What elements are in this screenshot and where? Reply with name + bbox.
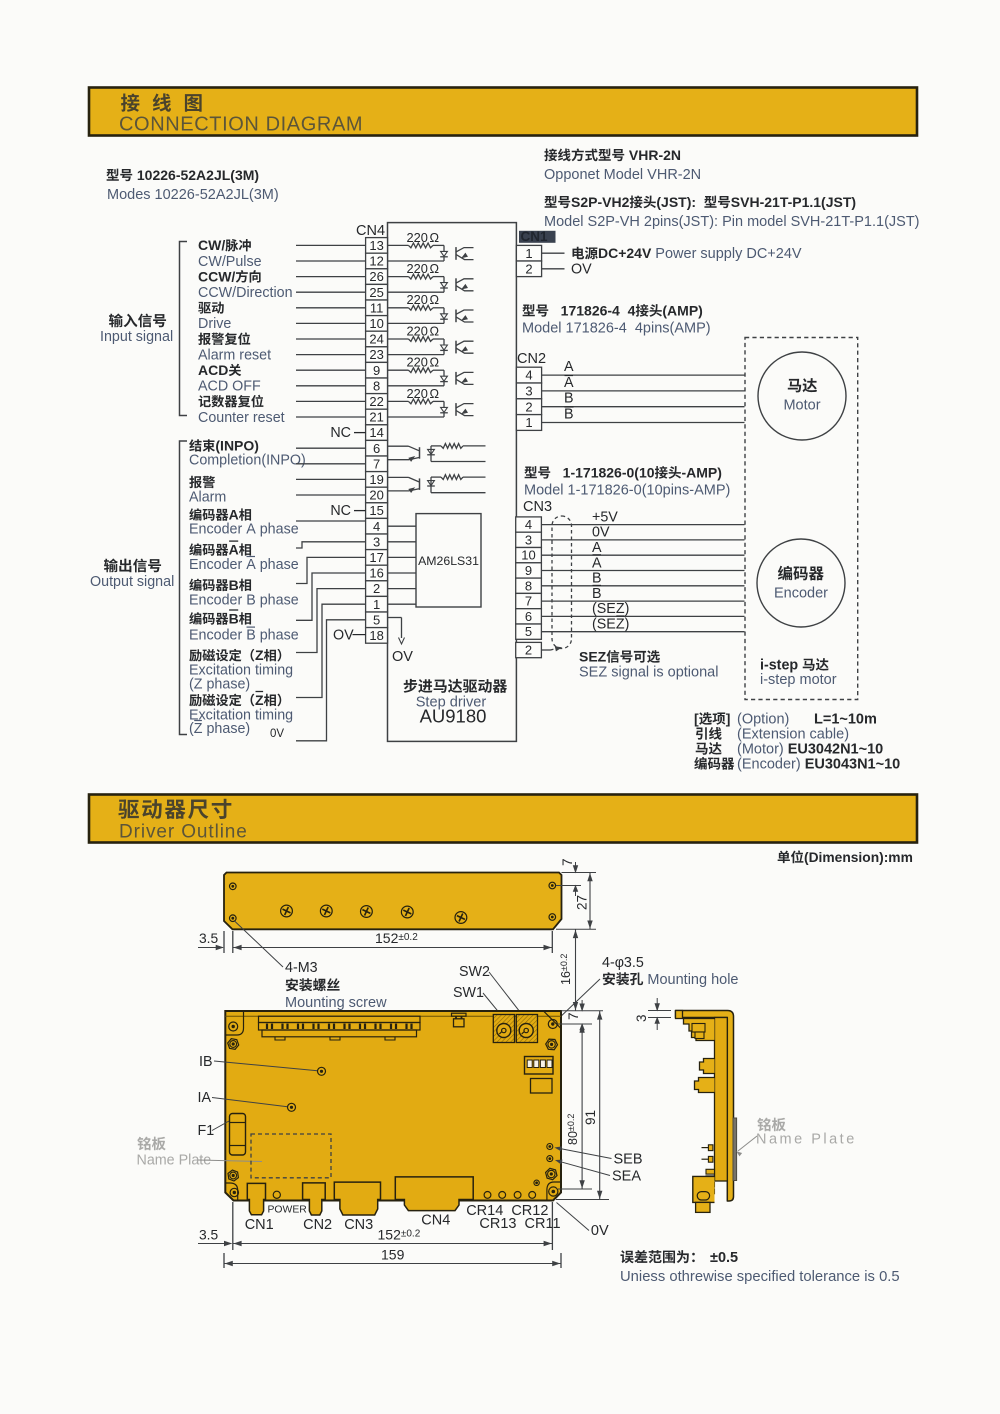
svg-text:25: 25 xyxy=(369,285,383,300)
svg-text:Ω: Ω xyxy=(430,261,440,276)
svg-text:CN4: CN4 xyxy=(356,223,385,239)
svg-text:1: 1 xyxy=(373,597,380,612)
svg-text:+5V: +5V xyxy=(592,509,618,525)
svg-text:S2P-VH2: S2P-VH2 xyxy=(571,194,630,210)
svg-text:L=1~10m: L=1~10m xyxy=(814,712,877,728)
svg-text:CN2: CN2 xyxy=(517,351,546,367)
svg-text:Mounting hole: Mounting hole xyxy=(647,972,738,988)
svg-text:POWER: POWER xyxy=(268,1205,308,1216)
svg-text:(Dimension):mm: (Dimension):mm xyxy=(804,850,913,865)
svg-text:Ω: Ω xyxy=(430,386,440,401)
svg-text:(INPO): (INPO) xyxy=(215,438,259,454)
svg-text:A: A xyxy=(564,375,574,391)
svg-text:Encoder: Encoder xyxy=(774,586,828,602)
svg-text:B: B xyxy=(592,571,602,587)
svg-text:CONNECTION DIAGRAM: CONNECTION DIAGRAM xyxy=(119,114,363,136)
svg-text:0V: 0V xyxy=(592,525,610,541)
svg-text:A: A xyxy=(229,507,239,523)
svg-text:Power supply DC+24V: Power supply DC+24V xyxy=(655,246,802,262)
svg-text:F1: F1 xyxy=(198,1123,215,1139)
svg-text:91: 91 xyxy=(583,1110,598,1125)
svg-text:NC: NC xyxy=(330,425,351,441)
svg-text:Motor: Motor xyxy=(783,398,820,414)
svg-text:A: A xyxy=(592,555,602,571)
svg-text:2: 2 xyxy=(373,581,380,596)
svg-text:1: 1 xyxy=(525,415,532,430)
svg-text:2: 2 xyxy=(525,643,532,658)
svg-text:5: 5 xyxy=(373,612,380,627)
svg-text:0V: 0V xyxy=(591,1223,609,1239)
svg-text:(Option): (Option) xyxy=(737,712,789,728)
svg-text:17: 17 xyxy=(369,550,383,565)
svg-text:Encoder B phase: Encoder B phase xyxy=(189,592,299,608)
svg-text:A: A xyxy=(564,359,574,375)
svg-text:CN1: CN1 xyxy=(245,1217,274,1233)
svg-text:159: 159 xyxy=(381,1247,405,1263)
svg-text:Ω: Ω xyxy=(430,292,440,307)
svg-text:(Motor): (Motor) xyxy=(737,742,788,758)
svg-text:Driver Outline: Driver Outline xyxy=(119,822,248,843)
svg-text:CW/: CW/ xyxy=(198,237,225,253)
svg-text:26: 26 xyxy=(369,269,383,284)
svg-text:B: B xyxy=(564,391,574,407)
svg-text:Ω: Ω xyxy=(430,323,440,338)
svg-text:CN1: CN1 xyxy=(521,229,548,244)
svg-text:A: A xyxy=(229,542,239,558)
svg-text:(Z phase): (Z phase) xyxy=(189,721,250,737)
svg-text:Modes 10226-52A2JL(3M): Modes 10226-52A2JL(3M) xyxy=(107,187,279,203)
svg-text:4-M3: 4-M3 xyxy=(285,960,318,976)
svg-text:CCW/: CCW/ xyxy=(198,268,235,284)
svg-text:CCW/Direction: CCW/Direction xyxy=(198,285,293,301)
svg-text:18: 18 xyxy=(369,628,383,643)
svg-text:Opponet Model VHR-2N: Opponet Model VHR-2N xyxy=(544,167,701,183)
svg-text:Encoder A phase: Encoder A phase xyxy=(189,522,299,538)
svg-text:3.5: 3.5 xyxy=(624,955,644,971)
svg-text:220: 220 xyxy=(407,230,428,245)
svg-text:EU3042N1~10: EU3042N1~10 xyxy=(788,742,884,758)
svg-text:3.5: 3.5 xyxy=(199,1228,219,1243)
svg-text:11: 11 xyxy=(370,300,384,315)
svg-text:AM26LS31: AM26LS31 xyxy=(418,554,479,568)
svg-text:CN2: CN2 xyxy=(303,1217,332,1233)
svg-text:Model 1-171826-0(10pins-AMP): Model 1-171826-0(10pins-AMP) xyxy=(524,483,730,499)
svg-text:Counter reset: Counter reset xyxy=(198,410,285,426)
svg-text:Uniess othrewise specified tol: Uniess othrewise specified tolerance is … xyxy=(620,1269,900,1285)
svg-text:EU3043N1~10: EU3043N1~10 xyxy=(805,757,901,773)
svg-text:7: 7 xyxy=(560,858,575,866)
svg-text:CN4: CN4 xyxy=(421,1213,450,1229)
svg-text:6: 6 xyxy=(373,441,380,456)
svg-text:]: ] xyxy=(726,711,731,727)
svg-text:13: 13 xyxy=(369,238,383,253)
svg-text:-AMP): -AMP) xyxy=(682,465,722,481)
svg-text:19: 19 xyxy=(369,472,383,487)
svg-text:Name Plate: Name Plate xyxy=(756,1132,857,1148)
svg-text:(Encoder): (Encoder) xyxy=(737,757,805,773)
svg-text:3.5: 3.5 xyxy=(199,931,219,946)
svg-text:(Z phase): (Z phase) xyxy=(189,676,250,692)
svg-text:[: [ xyxy=(694,711,699,727)
svg-text:B: B xyxy=(564,407,574,423)
svg-text:4: 4 xyxy=(373,519,380,534)
svg-text:B: B xyxy=(229,611,239,627)
svg-text:14: 14 xyxy=(369,425,383,440)
svg-text:10226-52A2JL(3M): 10226-52A2JL(3M) xyxy=(133,167,259,183)
svg-text:ACD OFF: ACD OFF xyxy=(198,379,261,395)
svg-text:4: 4 xyxy=(525,517,532,532)
svg-text:9: 9 xyxy=(525,563,532,578)
svg-text:ACD: ACD xyxy=(198,362,228,378)
svg-text:(SEZ): (SEZ) xyxy=(592,617,629,633)
svg-text:(Extension cable): (Extension cable) xyxy=(737,727,849,743)
svg-text:SEZ: SEZ xyxy=(579,649,607,665)
svg-text:171826-4 4: 171826-4 4 xyxy=(549,303,636,319)
svg-text:Encoder B phase: Encoder B phase xyxy=(189,628,299,644)
svg-text:10: 10 xyxy=(521,548,535,563)
svg-text:B: B xyxy=(592,586,602,602)
svg-text:8: 8 xyxy=(373,378,380,393)
svg-text:OV: OV xyxy=(571,262,592,278)
svg-text:220: 220 xyxy=(407,355,428,370)
svg-text:9: 9 xyxy=(373,363,380,378)
svg-text:Drive: Drive xyxy=(198,316,231,332)
svg-text:23: 23 xyxy=(369,347,383,362)
svg-text:16: 16 xyxy=(369,566,383,581)
svg-text:Encoder A phase: Encoder A phase xyxy=(189,557,299,573)
svg-text:12: 12 xyxy=(369,254,383,269)
svg-text:CW/Pulse: CW/Pulse xyxy=(198,254,262,270)
svg-text:6: 6 xyxy=(525,609,532,624)
svg-text:220: 220 xyxy=(407,323,428,338)
svg-text:220: 220 xyxy=(407,292,428,307)
svg-text:SEA: SEA xyxy=(612,1169,641,1185)
svg-text:(AMP): (AMP) xyxy=(662,303,702,319)
svg-text:(JST):: (JST): xyxy=(656,194,703,210)
svg-text:SEZ signal is optional: SEZ signal is optional xyxy=(579,665,718,681)
svg-text:SVH-21T-P1.1(JST): SVH-21T-P1.1(JST) xyxy=(731,194,856,210)
svg-text:5: 5 xyxy=(525,624,532,639)
svg-text:Ω: Ω xyxy=(430,355,440,370)
svg-text:2: 2 xyxy=(525,261,532,276)
svg-text:Output signal: Output signal xyxy=(90,574,174,590)
svg-text:SW2: SW2 xyxy=(459,964,490,980)
svg-text:DC+24V: DC+24V xyxy=(598,245,652,261)
svg-text:8: 8 xyxy=(525,578,532,593)
svg-text:SW1: SW1 xyxy=(453,985,484,1001)
svg-text:3: 3 xyxy=(373,534,380,549)
svg-text:(SEZ): (SEZ) xyxy=(592,601,629,617)
svg-text:CN3: CN3 xyxy=(344,1217,373,1233)
svg-text:1: 1 xyxy=(525,246,532,261)
svg-text:220: 220 xyxy=(407,261,428,276)
svg-text:Input signal: Input signal xyxy=(100,329,173,345)
svg-text:3: 3 xyxy=(525,532,532,547)
svg-text:2: 2 xyxy=(525,399,532,414)
svg-text:Z: Z xyxy=(255,692,264,708)
svg-text:20: 20 xyxy=(369,488,383,503)
svg-text:3: 3 xyxy=(525,384,532,399)
svg-text:Completion(INPO): Completion(INPO) xyxy=(189,453,306,469)
svg-text:24: 24 xyxy=(369,332,383,347)
svg-text:CN3: CN3 xyxy=(523,499,552,515)
svg-text:3: 3 xyxy=(634,1014,649,1022)
svg-text:27: 27 xyxy=(575,895,590,910)
svg-text:OV: OV xyxy=(333,627,354,643)
svg-text:SEB: SEB xyxy=(614,1152,643,1168)
svg-text:4: 4 xyxy=(525,368,532,383)
svg-text:VHR-2N: VHR-2N xyxy=(625,147,681,163)
svg-text:220: 220 xyxy=(407,386,428,401)
svg-text:A: A xyxy=(592,540,602,556)
svg-text:4-: 4- xyxy=(602,955,615,971)
svg-text:CR13 CR11: CR13 CR11 xyxy=(479,1216,560,1232)
svg-text:IB: IB xyxy=(199,1054,213,1070)
svg-text:0V: 0V xyxy=(270,728,284,740)
svg-text:Model S2P-VH 2pins(JST): Pin m: Model S2P-VH 2pins(JST): Pin model SVH-2… xyxy=(544,214,920,230)
svg-text:7: 7 xyxy=(525,594,532,609)
svg-text:7: 7 xyxy=(566,1012,581,1020)
svg-text:OV: OV xyxy=(392,649,413,665)
svg-text:Z: Z xyxy=(255,647,264,663)
svg-text:B: B xyxy=(229,577,239,593)
svg-text:22: 22 xyxy=(369,394,383,409)
svg-text:7: 7 xyxy=(373,456,380,471)
svg-text:21: 21 xyxy=(369,410,383,425)
svg-text:Ω: Ω xyxy=(430,230,440,245)
svg-text:i-step motor: i-step motor xyxy=(760,672,837,688)
svg-text:Mounting screw: Mounting screw xyxy=(285,995,387,1011)
svg-text:15: 15 xyxy=(369,503,383,518)
svg-text:±0.5: ±0.5 xyxy=(710,1250,738,1266)
svg-text:Model 171826-4 4pins(AMP): Model 171826-4 4pins(AMP) xyxy=(522,321,711,337)
svg-text:φ: φ xyxy=(615,955,624,971)
svg-text:10: 10 xyxy=(369,316,383,331)
svg-text:AU9180: AU9180 xyxy=(420,706,487,727)
svg-text:NC: NC xyxy=(330,503,351,519)
svg-text:1-171826-0(10: 1-171826-0(10 xyxy=(551,465,655,481)
svg-text:IA: IA xyxy=(198,1090,212,1106)
svg-text:Alarm: Alarm xyxy=(189,490,226,506)
svg-text:Alarm reset: Alarm reset xyxy=(198,347,271,363)
